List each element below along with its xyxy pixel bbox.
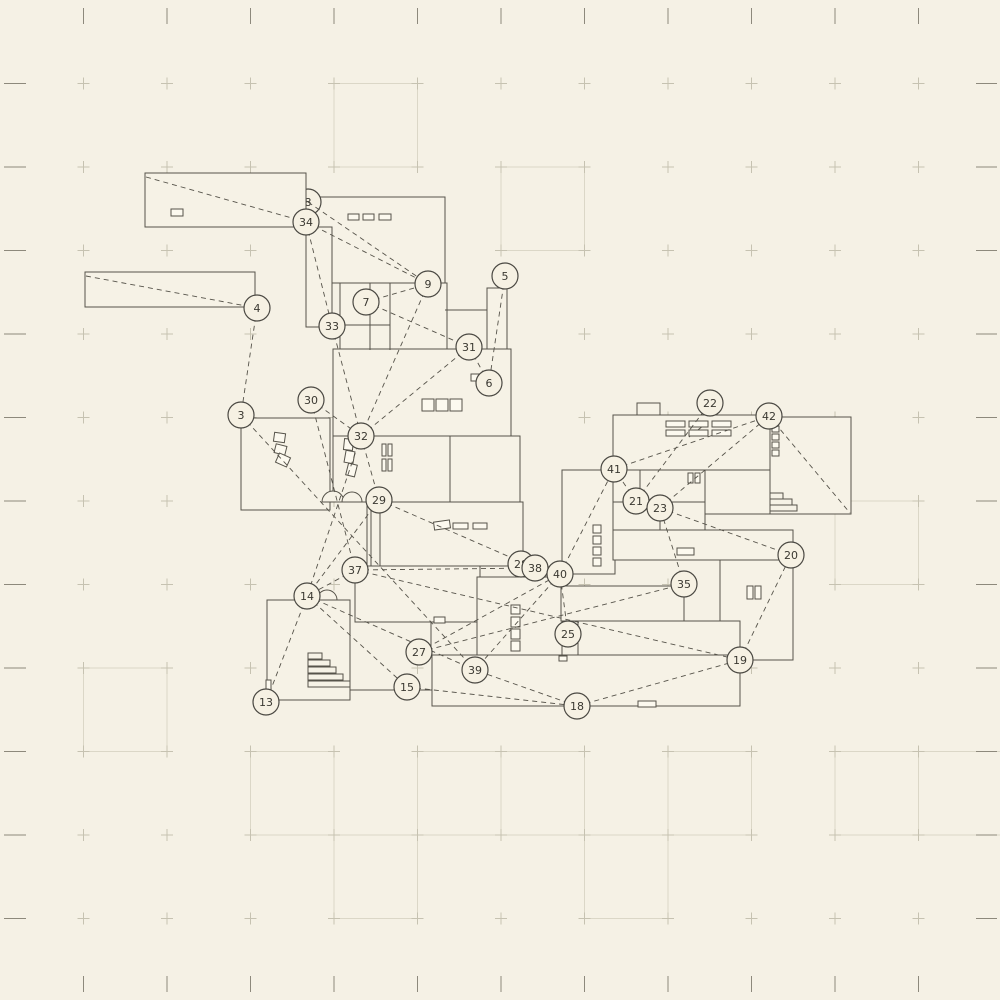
plan-node-circle-6[interactable] (476, 370, 502, 396)
plan-node-circle-20[interactable] (778, 542, 804, 568)
window-mark (473, 523, 487, 529)
plan-node-7[interactable]: 7 (353, 289, 379, 315)
plan-node-21[interactable]: 21 (623, 488, 649, 514)
plan-node-circle-7[interactable] (353, 289, 379, 315)
window-mark (593, 558, 601, 566)
room (561, 586, 684, 621)
plan-node-29[interactable]: 29 (366, 487, 392, 513)
plan-node-circle-19[interactable] (727, 647, 753, 673)
window-mark (712, 421, 731, 427)
window-mark (511, 641, 520, 651)
plan-node-circle-15[interactable] (394, 674, 420, 700)
plan-node-circle-5[interactable] (492, 263, 518, 289)
plan-node-3[interactable]: 3 (228, 402, 254, 428)
window-mark (688, 473, 693, 483)
plan-node-circle-32[interactable] (348, 423, 374, 449)
window-mark (379, 214, 391, 220)
plan-node-19[interactable]: 19 (727, 647, 753, 673)
window-mark (712, 430, 731, 436)
plan-node-circle-33[interactable] (319, 313, 345, 339)
plan-node-circle-35[interactable] (671, 571, 697, 597)
plan-node-circle-3[interactable] (228, 402, 254, 428)
plan-node-20[interactable]: 20 (778, 542, 804, 568)
room (613, 530, 793, 560)
room (145, 173, 306, 227)
plan-node-circle-37[interactable] (342, 557, 368, 583)
plan-node-39[interactable]: 39 (462, 657, 488, 683)
plan-node-circle-25[interactable] (555, 621, 581, 647)
room (85, 272, 255, 307)
plan-node-circle-21[interactable] (623, 488, 649, 514)
stair-step (308, 667, 336, 673)
plan-node-circle-38[interactable] (522, 555, 548, 581)
plan-node-9[interactable]: 9 (415, 271, 441, 297)
plan-node-4[interactable]: 4 (244, 295, 270, 321)
window-mark (511, 605, 520, 614)
stair-step (308, 681, 350, 687)
plan-node-25[interactable]: 25 (555, 621, 581, 647)
window-mark (772, 442, 779, 448)
window-mark (689, 430, 708, 436)
plan-node-30[interactable]: 30 (298, 387, 324, 413)
window-mark (348, 214, 359, 220)
window-mark (666, 421, 685, 427)
stair-step (308, 674, 343, 680)
plan-node-27[interactable]: 27 (406, 639, 432, 665)
window-mark (511, 617, 520, 627)
window-mark (453, 523, 468, 529)
plan-node-40[interactable]: 40 (547, 561, 573, 587)
plan-node-circle-39[interactable] (462, 657, 488, 683)
plan-node-circle-41[interactable] (601, 456, 627, 482)
plan-node-35[interactable]: 35 (671, 571, 697, 597)
plan-node-circle-31[interactable] (456, 334, 482, 360)
window-mark (677, 548, 694, 555)
plan-node-37[interactable]: 37 (342, 557, 368, 583)
room (562, 470, 615, 574)
plan-node-circle-42[interactable] (756, 403, 782, 429)
room (637, 403, 660, 415)
plan-node-13[interactable]: 13 (253, 689, 279, 715)
plan-node-circle-23[interactable] (647, 495, 673, 521)
window-mark (689, 421, 708, 427)
plan-node-32[interactable]: 32 (348, 423, 374, 449)
stair-step (308, 660, 330, 666)
plan-node-circle-22[interactable] (697, 390, 723, 416)
window-mark (171, 209, 183, 216)
window-mark (273, 432, 285, 442)
window-mark (559, 656, 567, 661)
plan-node-6[interactable]: 6 (476, 370, 502, 396)
window-mark (434, 617, 445, 623)
room (705, 470, 770, 514)
plan-node-5[interactable]: 5 (492, 263, 518, 289)
plan-node-circle-4[interactable] (244, 295, 270, 321)
plan-node-34[interactable]: 34 (293, 209, 319, 235)
stair-step (770, 493, 783, 499)
plan-node-41[interactable]: 41 (601, 456, 627, 482)
window-mark (638, 701, 656, 707)
room (380, 502, 523, 566)
plan-node-23[interactable]: 23 (647, 495, 673, 521)
plan-node-22[interactable]: 22 (697, 390, 723, 416)
floor-plan-stage: 8344975333163033222424121232937283840352… (0, 0, 1000, 1000)
window-mark (593, 525, 601, 533)
window-mark (593, 547, 601, 555)
window-mark (772, 434, 779, 440)
window-mark (772, 450, 779, 456)
stair-step (770, 505, 797, 511)
plan-node-circle-34[interactable] (293, 209, 319, 235)
window-mark (363, 214, 374, 220)
plan-node-31[interactable]: 31 (456, 334, 482, 360)
window-mark (388, 459, 392, 471)
plan-node-circle-40[interactable] (547, 561, 573, 587)
window-mark (755, 586, 761, 599)
room (450, 436, 520, 502)
window-mark (436, 399, 448, 411)
window-mark (593, 536, 601, 544)
stair-step (770, 499, 792, 505)
window-mark (511, 629, 520, 639)
window-mark (434, 520, 451, 530)
plan-node-circle-14[interactable] (294, 583, 320, 609)
window-mark (388, 444, 392, 456)
plan-node-33[interactable]: 33 (319, 313, 345, 339)
plan-node-38[interactable]: 38 (522, 555, 548, 581)
plan-node-42[interactable]: 42 (756, 403, 782, 429)
plan-node-14[interactable]: 14 (294, 583, 320, 609)
plan-node-circle-30[interactable] (298, 387, 324, 413)
plan-node-circle-18[interactable] (564, 693, 590, 719)
stair-step (308, 653, 322, 659)
window-mark (450, 399, 462, 411)
plan-node-circle-27[interactable] (406, 639, 432, 665)
window-mark (382, 459, 386, 471)
window-mark (382, 444, 386, 456)
window-mark (666, 430, 685, 436)
window-mark (747, 586, 753, 599)
plan-node-circle-29[interactable] (366, 487, 392, 513)
plan-node-15[interactable]: 15 (394, 674, 420, 700)
floor-plan-canvas: 8344975333163033222424121232937283840352… (0, 0, 1000, 1000)
plan-node-circle-9[interactable] (415, 271, 441, 297)
plan-node-18[interactable]: 18 (564, 693, 590, 719)
plan-node-circle-13[interactable] (253, 689, 279, 715)
window-mark (422, 399, 434, 411)
window-mark (344, 450, 355, 463)
